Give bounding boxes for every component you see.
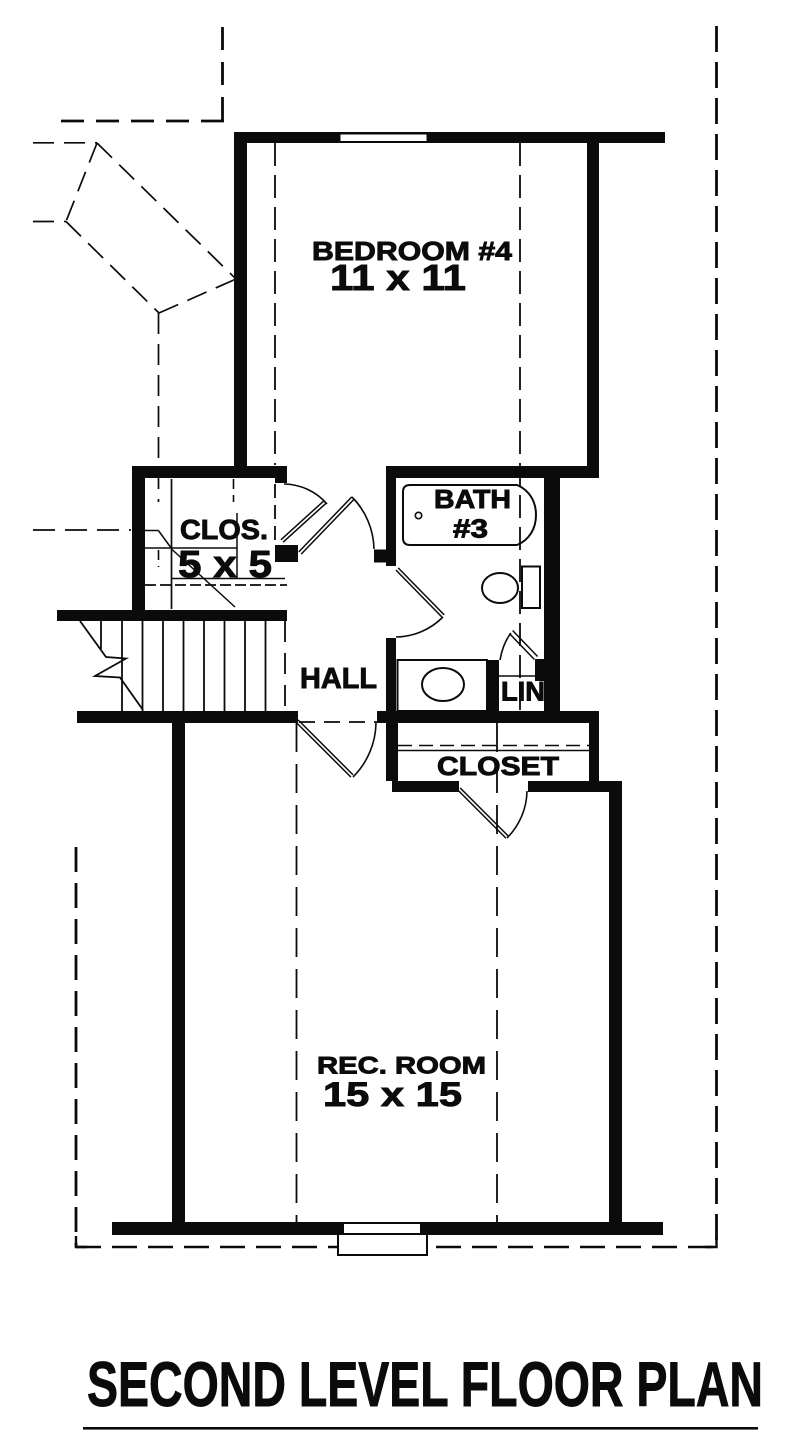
svg-text:CLOSET: CLOSET: [437, 751, 559, 781]
svg-text:LIN: LIN: [501, 677, 545, 707]
svg-text:#3: #3: [453, 514, 488, 544]
svg-text:11 x 11: 11 x 11: [330, 257, 466, 298]
svg-text:5 x 5: 5 x 5: [178, 544, 272, 586]
svg-text:15 x 15: 15 x 15: [323, 1076, 462, 1114]
svg-text:HALL: HALL: [300, 663, 377, 695]
svg-text:CLOS.: CLOS.: [180, 514, 268, 545]
svg-text:SECOND LEVEL FLOOR PLAN: SECOND LEVEL FLOOR PLAN: [87, 1350, 763, 1420]
svg-text:BATH: BATH: [434, 484, 511, 514]
